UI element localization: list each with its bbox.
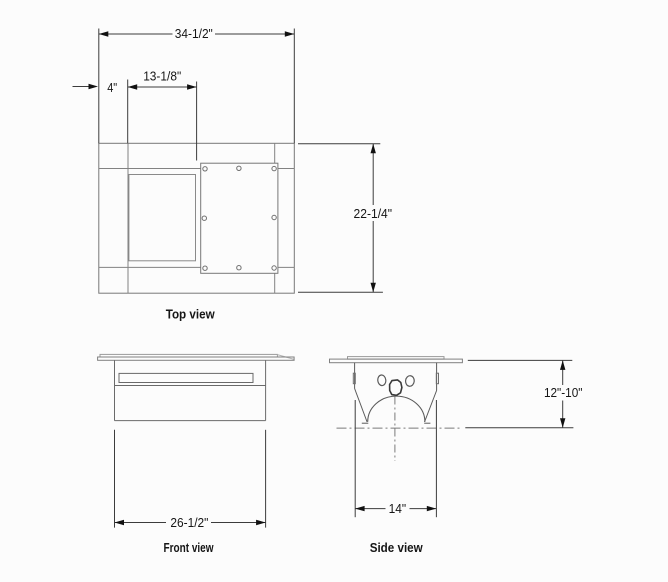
svg-text:26-1/2": 26-1/2" xyxy=(170,515,208,530)
svg-text:12"-10": 12"-10" xyxy=(544,385,583,400)
svg-text:14": 14" xyxy=(389,501,407,516)
svg-text:4": 4" xyxy=(107,80,117,95)
svg-text:13-1/8": 13-1/8" xyxy=(143,69,181,84)
svg-text:Side view: Side view xyxy=(370,540,424,555)
svg-text:34-1/2": 34-1/2" xyxy=(175,26,213,41)
svg-text:Top view: Top view xyxy=(166,307,216,322)
svg-text:Front view: Front view xyxy=(164,540,215,555)
svg-text:22-1/4": 22-1/4" xyxy=(354,206,393,221)
